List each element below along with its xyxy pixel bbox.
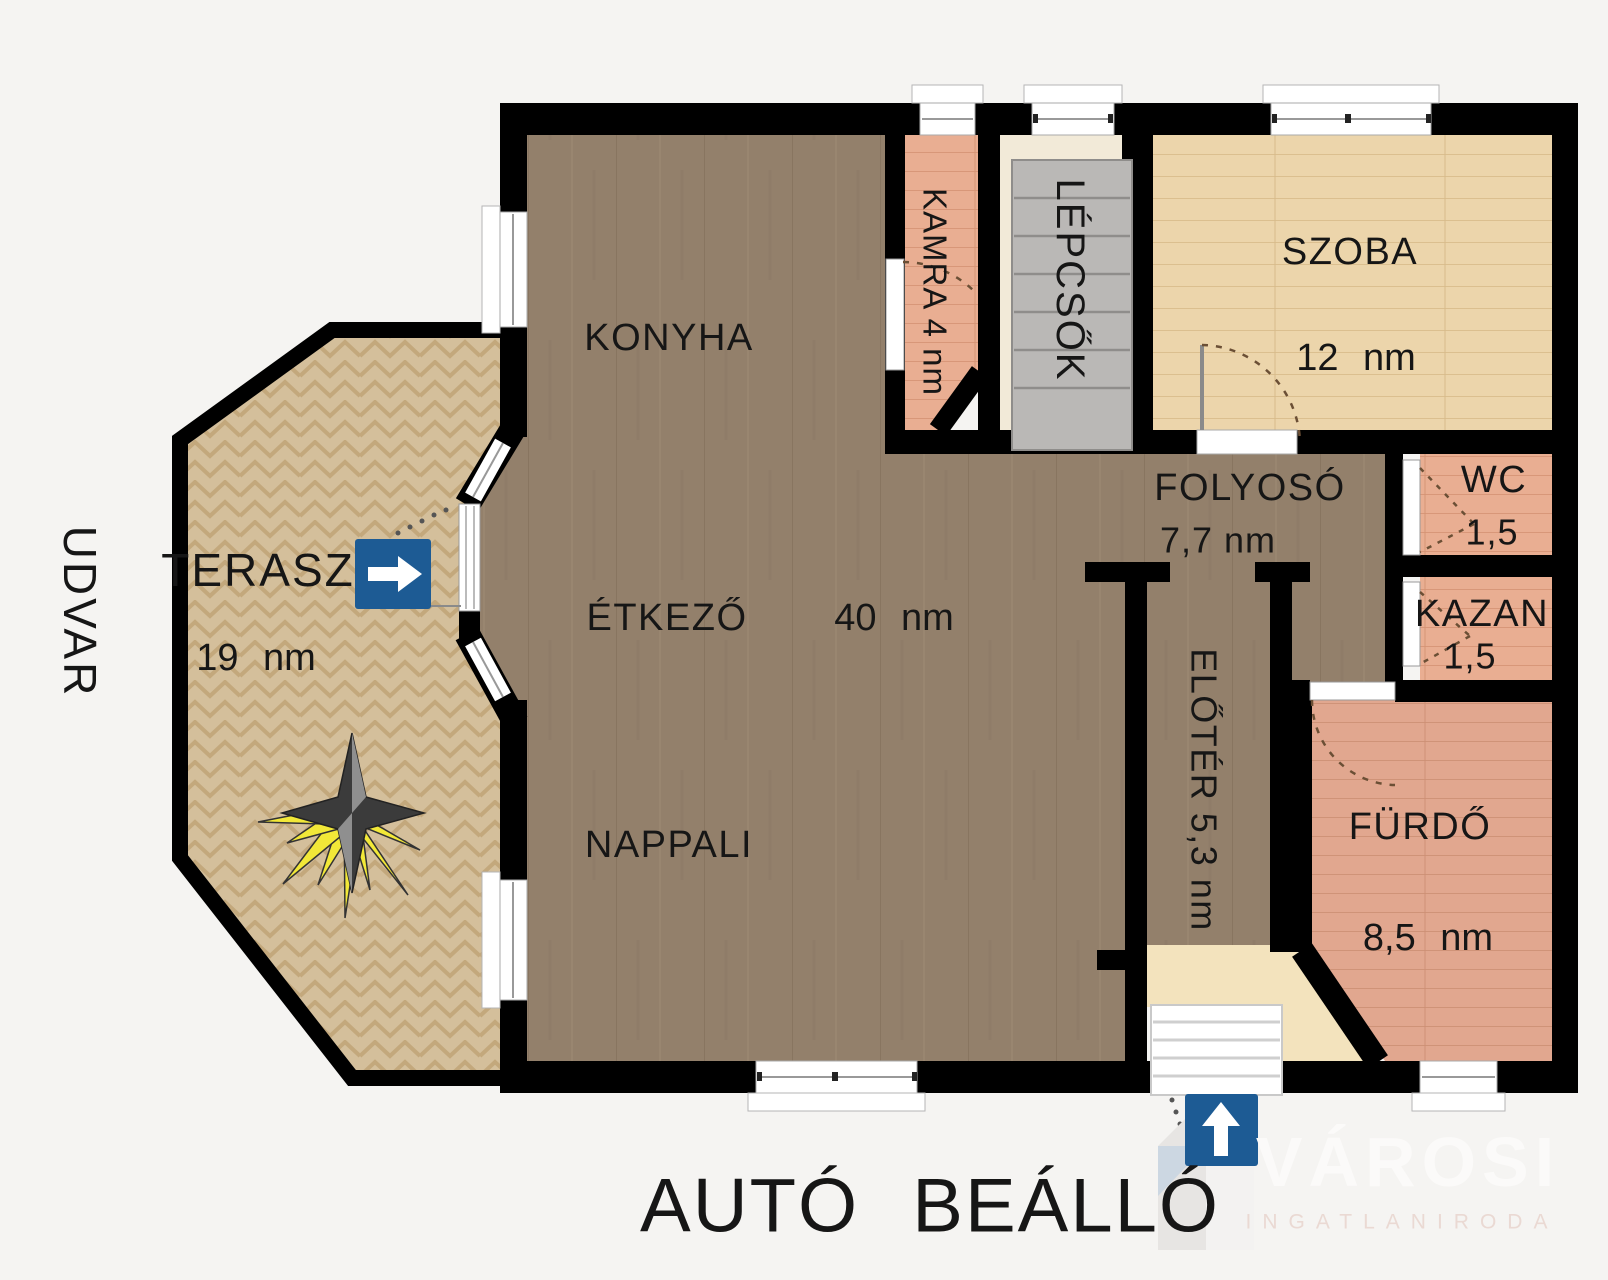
floor-plan-canvas: KONYHA ÉTKEZŐ 40 nm NAPPALI KAMRA 4 nm L…	[0, 0, 1608, 1280]
wall-bottom-3	[1282, 1061, 1420, 1093]
wall-mid-horizontal-2	[1297, 430, 1552, 454]
floor-plan-page: KONYHA ÉTKEZŐ 40 nm NAPPALI KAMRA 4 nm L…	[0, 0, 1608, 1280]
window-bottom-furdo	[1412, 1061, 1505, 1111]
window-bottom-nappali	[748, 1061, 925, 1111]
label-terasz-area: 19 nm	[196, 637, 316, 679]
window-top-stairs	[1024, 85, 1122, 135]
label-wc-area: 1,5	[1465, 512, 1518, 553]
label-szoba: SZOBA	[1282, 231, 1418, 273]
label-etkezo-area: 40 nm	[834, 597, 954, 639]
label-folyoso: FOLYOSÓ	[1154, 466, 1345, 509]
wall-kazan-furdo-1	[1292, 680, 1310, 702]
label-folyoso-area: 7,7 nm	[1160, 520, 1276, 561]
label-kazan: KAZAN	[1415, 593, 1549, 635]
window-top-kamra	[912, 85, 983, 135]
brand-name: VÁROSI	[1256, 1123, 1560, 1201]
wall-bottom-4	[1497, 1061, 1578, 1093]
wall-kazan-furdo-2	[1395, 680, 1552, 702]
wall-bottom-2	[917, 1061, 1168, 1093]
label-terasz: TERASZ	[161, 544, 354, 596]
label-etkezo: ÉTKEZŐ	[586, 596, 747, 639]
window-left-konyha	[482, 206, 527, 333]
brand-subtitle: INGATLANIRODA	[1246, 1211, 1559, 1234]
entrance-landing	[1147, 945, 1270, 1007]
wall-eloter-left-cap	[1085, 562, 1170, 582]
wall-right	[1552, 103, 1578, 1093]
terrace-door	[459, 504, 480, 611]
label-nappali: NAPPALI	[585, 824, 753, 866]
wall-eloter-left-foot	[1097, 950, 1125, 970]
label-kazan-area: 1,5	[1443, 636, 1496, 677]
nappali-east-floor	[885, 454, 1125, 1061]
wall-bay-door-flank	[459, 609, 480, 641]
wall-furdo-left	[1292, 700, 1312, 952]
label-konyha: KONYHA	[584, 317, 753, 359]
label-eloter: ELŐTÉR 5,3 nm	[1184, 648, 1225, 932]
label-lepcsok: LÉPCSŐK	[1048, 179, 1093, 382]
window-left-nappali	[482, 872, 527, 1008]
wall-left-1	[500, 103, 527, 212]
label-udvar: UDVAR	[54, 526, 106, 699]
label-kamra: KAMRA 4 nm	[917, 188, 954, 396]
entrance-arrow-up-icon	[1185, 1094, 1258, 1166]
label-wc: WC	[1461, 459, 1527, 501]
wall-wc-kazan-divider	[1403, 555, 1552, 577]
label-furdo-area: 8,5 nm	[1363, 917, 1493, 959]
wall-eloter-right	[1270, 562, 1292, 952]
label-szoba-area: 12 nm	[1296, 337, 1416, 379]
szoba-floor	[1153, 135, 1552, 430]
wall-kamra-stairs	[978, 135, 1000, 430]
wall-top-1	[500, 103, 920, 135]
label-furdo: FÜRDŐ	[1349, 805, 1492, 848]
wall-wc-left	[1385, 454, 1403, 700]
wall-left-4	[500, 1000, 527, 1061]
wall-eloter-right-cap	[1255, 562, 1310, 582]
wall-bottom-1	[500, 1061, 756, 1093]
window-top-szoba	[1263, 85, 1439, 135]
wall-eloter-left	[1125, 562, 1147, 1061]
wall-top-3	[1114, 103, 1271, 135]
wall-top-2	[975, 103, 1032, 135]
label-parking: AUTÓ BEÁLLÓ	[640, 1164, 1220, 1249]
